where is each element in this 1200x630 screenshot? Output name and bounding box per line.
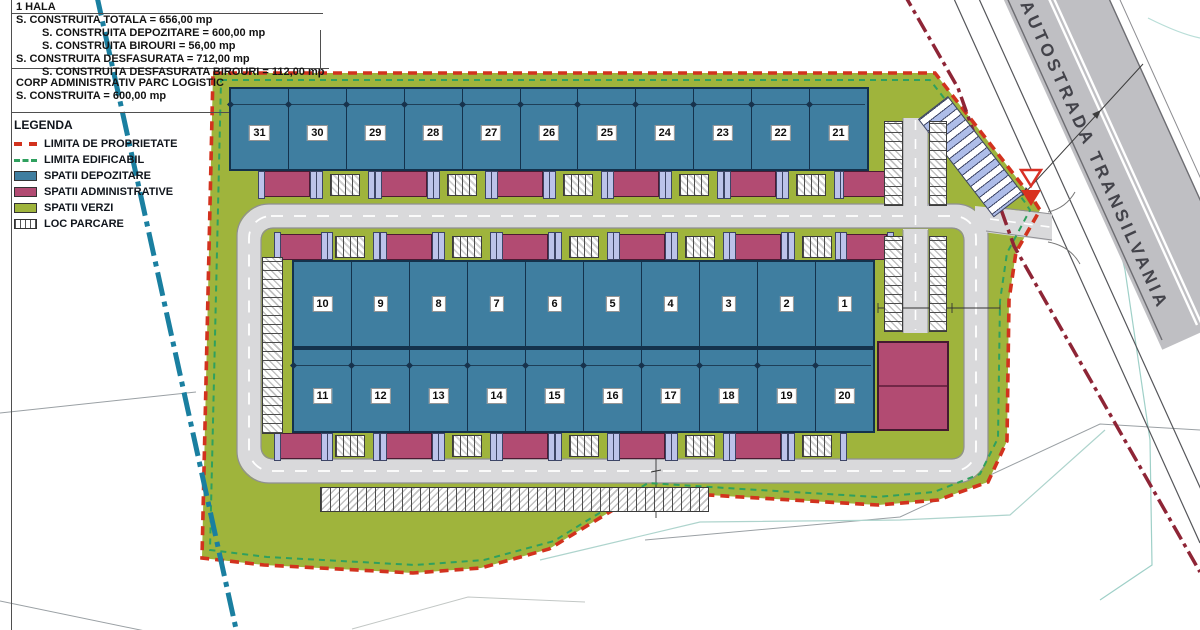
legend-label: SPATII VERZI (44, 202, 113, 214)
site-plan-canvas: AUTOSTRADA TRANSILVANIA 1 HALA S. CONSTR… (0, 0, 1200, 630)
parking-cluster (335, 236, 365, 258)
hall-number: 13 (428, 388, 448, 404)
hall-row-21-31: 3130292827262524232221 (229, 87, 869, 171)
parking-cluster (335, 435, 365, 457)
dock-strip (380, 433, 387, 461)
hall-number: 14 (486, 388, 506, 404)
dock-strip (729, 232, 736, 260)
hall-29: 29 (347, 89, 405, 169)
legend-swatch-parking-spot (14, 219, 37, 229)
dock-strip (717, 171, 724, 199)
parking-cluster (447, 174, 477, 196)
hall-number: 21 (828, 125, 848, 141)
parking-cluster (452, 435, 482, 457)
dock-strip (781, 232, 788, 260)
hall-6: 6 (526, 262, 584, 346)
hall-28: 28 (405, 89, 463, 169)
legend-item-green-spaces: SPATII VERZI (14, 200, 177, 216)
hall-number: 6 (547, 296, 561, 312)
hall-27: 27 (463, 89, 521, 169)
hall-area-summary: 1 HALA S. CONSTRUITA TOTALA = 656,00 mp … (16, 1, 324, 78)
legend-label: LIMITA EDIFICABIL (44, 154, 144, 166)
hall-22: 22 (752, 89, 810, 169)
dock-strip (490, 433, 497, 461)
hall-13: 13 (410, 350, 468, 431)
hall-row-1-10: 10987654321 (292, 260, 875, 348)
parking-cluster (569, 236, 599, 258)
parking-cluster (330, 174, 360, 196)
hall-19: 19 (758, 350, 816, 431)
hall-number: 25 (597, 125, 617, 141)
parking-north-left (884, 121, 903, 206)
admin-office-block (619, 433, 665, 459)
parking-cluster (563, 174, 593, 196)
parking-cluster (452, 236, 482, 258)
parking-east-right (929, 236, 947, 332)
admin-office-block (381, 171, 427, 197)
dock-strip (548, 232, 555, 260)
legend-swatch-property-limit (14, 142, 37, 146)
hall-8: 8 (410, 262, 468, 346)
admin-office-block (386, 433, 432, 459)
parking-cluster (679, 174, 709, 196)
hall-number: 30 (307, 125, 327, 141)
dock-strip (373, 433, 380, 461)
legend-label: SPATII DEPOZITARE (44, 170, 151, 182)
hall-18: 18 (700, 350, 758, 431)
hall-10: 10 (294, 262, 352, 346)
dock-strip (548, 433, 555, 461)
dock-strip (274, 232, 281, 260)
hall-number: 15 (544, 388, 564, 404)
parking-cluster (685, 236, 715, 258)
parking-cluster (802, 435, 832, 457)
hall-number: 11 (313, 388, 333, 404)
dock-strip (729, 433, 736, 461)
dock-strip (438, 232, 445, 260)
hall-number: 28 (423, 125, 443, 141)
hall-number: 20 (834, 388, 854, 404)
hall-21: 21 (810, 89, 867, 169)
legend-item-buildable-limit: LIMITA EDIFICABIL (14, 152, 177, 168)
admin-office-block (730, 171, 776, 197)
dock-strip (723, 232, 730, 260)
legend-item-storage: SPATII DEPOZITARE (14, 168, 177, 184)
hall-number: 5 (605, 296, 619, 312)
admin-office-block (735, 433, 781, 459)
admin-summary-line: S. CONSTRUITA = 600,00 mp (16, 90, 224, 103)
dock-strip (601, 171, 608, 199)
dock-strip (485, 171, 492, 199)
admin-office-block (264, 171, 310, 197)
legend-swatch-storage (14, 171, 37, 181)
dock-strip (788, 433, 795, 461)
hall-31: 31 (231, 89, 289, 169)
hall-11: 11 (294, 350, 352, 431)
hall-14: 14 (468, 350, 526, 431)
admin-office-block (386, 234, 432, 260)
hall-number: 24 (655, 125, 675, 141)
hall-20: 20 (816, 350, 873, 431)
dock-strip (490, 232, 497, 260)
hall-17: 17 (642, 350, 700, 431)
legend-label: LOC PARCARE (44, 218, 124, 230)
dock-strip (613, 232, 620, 260)
hall-24: 24 (636, 89, 694, 169)
hall-summary-line: S. CONSTRUITA BIROURI = 56,00 mp (16, 40, 324, 53)
hall-number: 17 (660, 388, 680, 404)
dock-strip (724, 171, 731, 199)
parking-row-south (320, 487, 709, 512)
hall-summary-line: S. CONSTRUITA DEPOZITARE = 600,00 mp (16, 27, 324, 40)
hall-number: 19 (776, 388, 796, 404)
hall-25: 25 (578, 89, 636, 169)
frame-line-vertical (11, 0, 12, 630)
dock-strip (373, 232, 380, 260)
legend-item-property-limit: LIMITA DE PROPRIETATE (14, 136, 177, 152)
hall-number: 10 (312, 296, 332, 312)
dock-strip (549, 171, 556, 199)
hall-number: 7 (489, 296, 503, 312)
admin-office-block (619, 234, 665, 260)
parking-cluster (569, 435, 599, 457)
hall-9: 9 (352, 262, 410, 346)
frame-line-h3 (11, 112, 241, 113)
hall-number: 29 (365, 125, 385, 141)
admin-building-summary: CORP ADMINISTRATIV PARC LOGISTIC S. CONS… (16, 77, 224, 103)
dock-strip (840, 433, 847, 461)
hall-12: 12 (352, 350, 410, 431)
hall-5: 5 (584, 262, 642, 346)
dock-strip (782, 171, 789, 199)
dock-strip (607, 232, 614, 260)
admin-office-block (613, 171, 659, 197)
admin-office-block (841, 234, 887, 260)
admin-office-block (280, 433, 326, 459)
hall-number: 23 (713, 125, 733, 141)
legend-label: LIMITA DE PROPRIETATE (44, 138, 177, 150)
hall-number: 2 (779, 296, 793, 312)
dock-strip (496, 433, 503, 461)
dock-strip (781, 433, 788, 461)
dock-strip (274, 433, 281, 461)
dock-strip (321, 433, 328, 461)
hall-26: 26 (521, 89, 579, 169)
dock-strip (375, 171, 382, 199)
dock-strip (368, 171, 375, 199)
dock-strip (607, 171, 614, 199)
dock-strip (723, 433, 730, 461)
legend-item-parking-spot: LOC PARCARE (14, 216, 177, 232)
admin-office-block (502, 433, 548, 459)
hall-row-11-20: 11121314151617181920 (292, 348, 875, 433)
dock-strip (613, 433, 620, 461)
admin-office-block (735, 234, 781, 260)
legend-label: SPATII ADMINISTRATIVE (44, 186, 173, 198)
dock-strip (491, 171, 498, 199)
legend-swatch-buildable-limit (14, 159, 37, 162)
admin-summary-title: CORP ADMINISTRATIV PARC LOGISTIC (16, 77, 224, 90)
hall-summary-line: S. CONSTRUITA TOTALA = 656,00 mp (16, 14, 324, 27)
dock-strip (496, 232, 503, 260)
parking-cluster (685, 435, 715, 457)
hall-1: 1 (816, 262, 873, 346)
hall-number: 22 (770, 125, 790, 141)
dock-strip (380, 232, 387, 260)
hall-16: 16 (584, 350, 642, 431)
dock-strip (321, 232, 328, 260)
parking-cluster (802, 236, 832, 258)
hall-3: 3 (700, 262, 758, 346)
hall-23: 23 (694, 89, 752, 169)
hall-number: 26 (539, 125, 559, 141)
hall-30: 30 (289, 89, 347, 169)
hall-15: 15 (526, 350, 584, 431)
legend-swatch-administrative (14, 187, 37, 197)
hall-number: 3 (721, 296, 735, 312)
parking-east-left (884, 236, 903, 332)
hall-number: 12 (370, 388, 390, 404)
legend-item-administrative: SPATII ADMINISTRATIVE (14, 184, 177, 200)
hall-number: 31 (249, 125, 269, 141)
dock-strip (555, 232, 562, 260)
dock-strip (840, 232, 847, 260)
parking-north-right (929, 121, 947, 206)
hall-number: 1 (837, 296, 851, 312)
dock-strip (433, 171, 440, 199)
admin-office-block (497, 171, 543, 197)
admin-office-block (843, 171, 889, 197)
hall-number: 4 (663, 296, 677, 312)
hall-7: 7 (468, 262, 526, 346)
hall-number: 16 (602, 388, 622, 404)
admin-park-building (877, 341, 949, 431)
dock-strip (607, 433, 614, 461)
dock-strip (555, 433, 562, 461)
admin-office-block (280, 234, 326, 260)
dock-strip (834, 171, 841, 199)
legend: LEGENDA LIMITA DE PROPRIETATE LIMITA EDI… (14, 118, 177, 232)
hall-summary-line: S. CONSTRUITA DESFASURATA = 712,00 mp (16, 53, 324, 66)
legend-swatch-green-spaces (14, 203, 37, 213)
dock-strip (258, 171, 265, 199)
hall-number: 8 (431, 296, 445, 312)
dock-strip (438, 433, 445, 461)
legend-title: LEGENDA (14, 118, 177, 132)
hall-summary-title: 1 HALA (16, 1, 324, 14)
parking-row-west (262, 257, 283, 434)
hall-2: 2 (758, 262, 816, 346)
admin-office-block (502, 234, 548, 260)
dock-strip (788, 232, 795, 260)
dock-strip (665, 171, 672, 199)
hall-number: 18 (718, 388, 738, 404)
dock-strip (671, 433, 678, 461)
hall-number: 9 (373, 296, 387, 312)
hall-4: 4 (642, 262, 700, 346)
dock-strip (671, 232, 678, 260)
parking-cluster (796, 174, 826, 196)
hall-number: 27 (481, 125, 501, 141)
dock-strip (316, 171, 323, 199)
